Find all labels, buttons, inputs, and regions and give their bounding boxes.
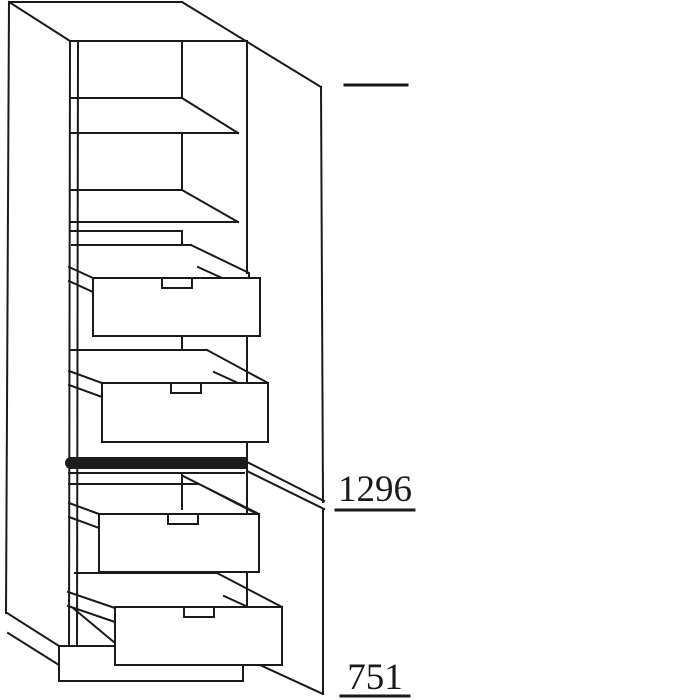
handle-bar bbox=[65, 457, 248, 469]
shelf-1 bbox=[70, 98, 238, 133]
drawer-2 bbox=[69, 350, 268, 442]
dimension-label-lower: 751 bbox=[347, 657, 403, 698]
drawer-2-front bbox=[102, 383, 268, 442]
drawer-1 bbox=[69, 245, 260, 336]
cabinet-diagram: 1296 751 bbox=[0, 0, 700, 700]
dimension-upper: 1296 bbox=[336, 85, 414, 510]
drawer-4 bbox=[68, 573, 282, 665]
dimension-label-upper: 1296 bbox=[338, 469, 412, 510]
drawer-3 bbox=[69, 476, 259, 572]
drawer-3-front bbox=[99, 514, 259, 572]
drawer-1-front bbox=[93, 278, 260, 336]
diagram-canvas: 1296 751 bbox=[0, 0, 700, 700]
dimension-lower: 751 bbox=[341, 657, 409, 698]
drawer-4-front bbox=[115, 607, 282, 665]
shelf-2 bbox=[70, 190, 238, 231]
